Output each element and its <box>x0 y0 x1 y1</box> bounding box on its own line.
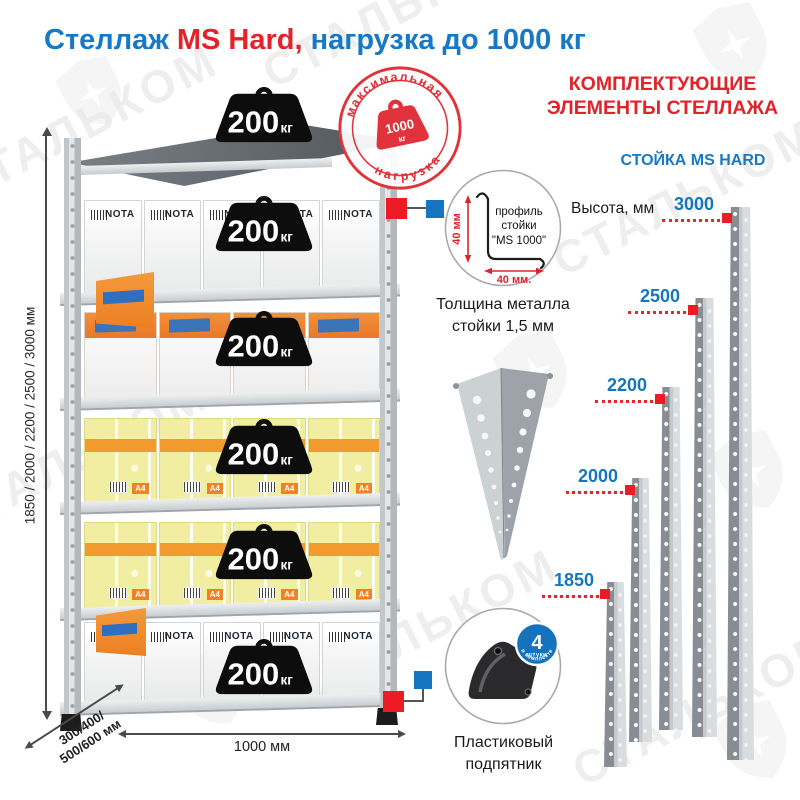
marker-blue <box>414 671 432 689</box>
foot-caption-line2: подпятник <box>426 754 581 776</box>
quantity-badge: 4 штуки в комплекте <box>516 623 558 665</box>
height-marker <box>625 485 635 495</box>
components-header: КОМПЛЕКТУЮЩИЕ ЭЛЕМЕНТЫ СТЕЛЛАЖА <box>540 72 785 120</box>
height-units-label: Высота, мм <box>571 200 654 218</box>
marker-line <box>407 207 426 209</box>
box-side-label <box>96 608 146 656</box>
thickness-caption: Толщина металла стойки 1,5 мм <box>424 294 582 338</box>
marker-blue <box>426 200 444 218</box>
upright-post <box>64 138 81 716</box>
weight-icon: 200 кг <box>191 195 337 255</box>
barcode-icon <box>258 587 276 599</box>
barcode-icon <box>258 481 276 493</box>
height-post-2200 <box>659 387 683 730</box>
max-load-stamp: максимальная нагрузка 1000 кг <box>324 52 476 204</box>
weight-unit: кг <box>280 557 293 572</box>
height-post-2500 <box>692 298 717 737</box>
height-marker <box>655 394 665 404</box>
height-marker <box>600 589 610 599</box>
height-leader <box>566 491 623 494</box>
weight-value: 200 <box>228 213 280 248</box>
foot-caption-line1: Пластиковый <box>426 732 581 754</box>
profile-dim-horizontal: 40 мм. <box>497 274 532 286</box>
dimension-width-label: 1000 мм <box>125 739 399 755</box>
title-part-blue: Стеллаж <box>44 24 177 56</box>
profile-detail-circle: 40 мм 40 мм. профиль стойки "MS 1000" <box>443 168 563 288</box>
barcode-icon <box>109 481 127 493</box>
infographic-canvas: СТАЛЬКОМ СТАЛЬКОМ СТАЛЬКОМ СТАЛЬКОМ СТАЛ… <box>0 0 800 800</box>
weight-icon: 200 кг <box>191 418 337 478</box>
height-leader <box>595 400 653 403</box>
height-post-label: 1850 <box>542 570 594 591</box>
box-brand-label: NOTA <box>343 209 373 220</box>
weight-value: 200 <box>228 436 280 471</box>
weight-icon: 200 кг <box>191 638 337 698</box>
height-marker <box>722 213 732 223</box>
weight-icon: 200 кг <box>191 523 337 583</box>
box-brand-label: NOTA <box>165 209 195 220</box>
weight-icon: 200 кг <box>191 86 337 146</box>
height-post-1850 <box>604 582 627 767</box>
profile-label: "MS 1000" <box>492 235 546 247</box>
height-leader <box>662 219 720 222</box>
a4-label: A4 <box>132 483 148 494</box>
weight-unit: кг <box>280 452 293 467</box>
box-brand-label: NOTA <box>105 209 135 220</box>
barcode-icon <box>332 481 350 493</box>
marker-red <box>386 198 407 219</box>
marker-red <box>383 691 404 712</box>
box-side-label <box>96 272 154 328</box>
barcode-icon <box>183 481 201 493</box>
height-marker <box>688 305 698 315</box>
height-leader <box>628 311 686 314</box>
weight-value: 200 <box>228 104 280 139</box>
box: A4 <box>84 522 157 608</box>
barcode-icon <box>183 587 201 599</box>
dimension-height-line <box>45 135 47 712</box>
badge-number: 4 <box>531 632 543 654</box>
weight-icon: 200 кг <box>191 310 337 370</box>
dimension-width-line <box>125 733 399 735</box>
post-title: СТОЙКА MS HARD <box>618 152 768 170</box>
height-post-label: 2500 <box>628 286 680 307</box>
profile-label: стойки <box>501 220 536 232</box>
height-post-label: 2000 <box>566 466 618 487</box>
weight-value: 200 <box>228 328 280 363</box>
weight-unit: кг <box>280 229 293 244</box>
a4-label: A4 <box>281 589 297 600</box>
components-header-line1: КОМПЛЕКТУЮЩИЕ <box>540 72 785 96</box>
profile-label: профиль <box>495 206 543 218</box>
barcode-icon <box>332 587 350 599</box>
a4-label: A4 <box>132 589 148 600</box>
post-perspective-icon <box>443 360 563 578</box>
a4-label: A4 <box>207 483 223 494</box>
height-post-label: 3000 <box>662 194 714 215</box>
box-brand-label: NOTA <box>165 631 195 642</box>
components-header-line2: ЭЛЕМЕНТЫ СТЕЛЛАЖА <box>540 96 785 120</box>
thickness-line2: стойки 1,5 мм <box>424 316 582 338</box>
barcode-icon <box>109 587 127 599</box>
page-title: Стеллаж MS Hard, нагрузка до 1000 кг <box>44 24 586 57</box>
upright-post <box>380 132 397 712</box>
weight-unit: кг <box>280 120 293 135</box>
weight-unit: кг <box>280 344 293 359</box>
thickness-line1: Толщина металла <box>424 294 582 316</box>
profile-dim-vertical: 40 мм <box>451 213 463 245</box>
height-leader <box>542 595 599 598</box>
foot-detail-circle: 4 штуки в комплекте <box>441 604 565 728</box>
dimension-height-label: 1850 / 2000 / 2200 / 2500 / 3000 мм <box>23 276 38 556</box>
height-post-2000 <box>629 478 652 742</box>
title-part-red: MS Hard, <box>177 24 303 56</box>
a4-label: A4 <box>207 589 223 600</box>
title-part-blue: нагрузка до 1000 кг <box>303 24 586 56</box>
height-post-label: 2200 <box>595 375 647 396</box>
weight-value: 200 <box>228 656 280 691</box>
foot-caption: Пластиковый подпятник <box>426 732 581 776</box>
a4-label: A4 <box>281 483 297 494</box>
box-brand-label: NOTA <box>343 631 373 642</box>
weight-unit: кг <box>280 672 293 687</box>
height-post-3000 <box>727 207 754 760</box>
box: A4 <box>84 418 157 502</box>
weight-value: 200 <box>228 541 280 576</box>
dimension-width: 1000 мм <box>125 733 399 755</box>
